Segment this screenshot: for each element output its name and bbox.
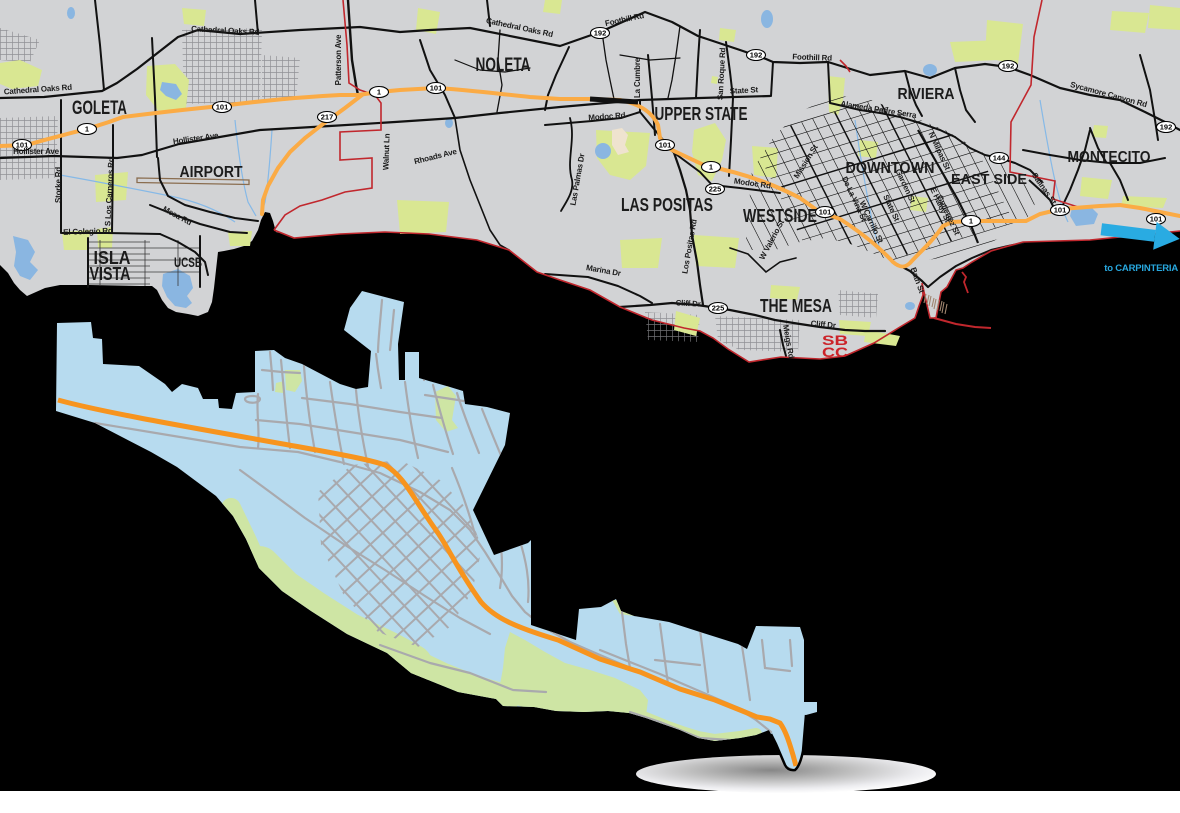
svg-text:UPPER STATE: UPPER STATE [655,104,748,124]
svg-text:Cliff Dr: Cliff Dr [675,298,701,308]
svg-text:UCSB: UCSB [174,254,202,270]
svg-text:1: 1 [85,125,89,134]
svg-text:101: 101 [1150,215,1163,224]
svg-text:1: 1 [377,88,381,97]
svg-text:RIVIERA: RIVIERA [898,86,955,103]
svg-text:Hollister Ave: Hollister Ave [13,147,59,156]
svg-text:192: 192 [750,51,763,60]
svg-text:Foothill Rd: Foothill Rd [792,52,832,62]
svg-text:VISTA: VISTA [90,264,131,284]
svg-text:Walnut Ln: Walnut Ln [381,133,391,170]
svg-text:THE MESA: THE MESA [760,296,832,316]
svg-text:144: 144 [993,154,1006,163]
svg-text:La Cumbre: La Cumbre [633,57,642,98]
svg-text:El Colegio Rd: El Colegio Rd [63,226,113,237]
svg-text:AIRPORT: AIRPORT [180,164,243,181]
svg-text:to CARPINTERIA: to CARPINTERIA [1104,263,1178,274]
svg-text:DOWNTOWN: DOWNTOWN [846,160,935,177]
svg-text:GOLETA: GOLETA [72,97,127,119]
svg-text:192: 192 [1160,123,1173,132]
svg-text:225: 225 [712,304,725,313]
svg-text:101: 101 [1054,206,1067,215]
svg-text:101: 101 [659,141,672,150]
svg-text:101: 101 [819,208,832,217]
svg-text:LAS POSITAS: LAS POSITAS [621,194,713,215]
svg-text:192: 192 [1002,62,1015,71]
svg-text:101: 101 [216,103,229,112]
svg-text:CC: CC [822,344,848,360]
svg-text:217: 217 [321,113,334,122]
svg-text:NOLETA: NOLETA [476,55,531,76]
svg-text:Storke Rd: Storke Rd [54,167,63,203]
svg-text:101: 101 [430,84,443,93]
svg-text:225: 225 [709,185,722,194]
svg-text:192: 192 [594,29,607,38]
svg-text:Patterson Ave: Patterson Ave [334,34,343,85]
svg-text:EAST SIDE: EAST SIDE [951,172,1027,188]
svg-text:1: 1 [709,163,713,172]
svg-text:State St: State St [730,85,759,95]
svg-text:MONTECITO: MONTECITO [1068,149,1151,166]
svg-text:1: 1 [969,217,973,226]
